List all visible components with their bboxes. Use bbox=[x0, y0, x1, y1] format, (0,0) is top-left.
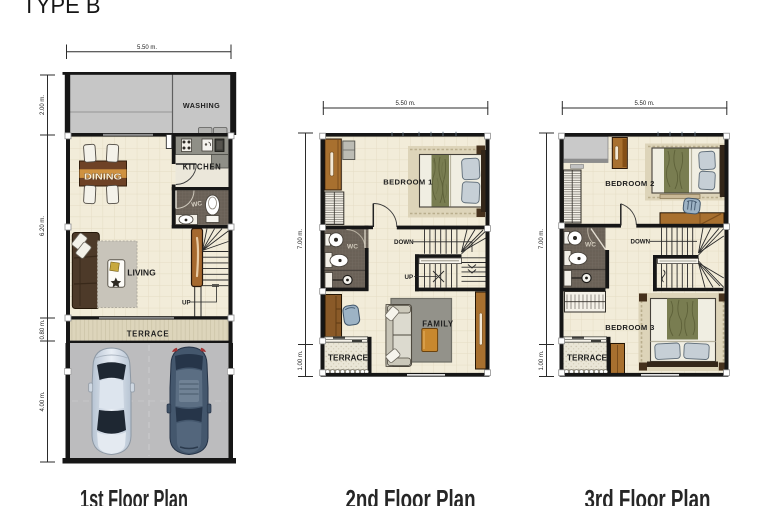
svg-text:WASHING: WASHING bbox=[183, 101, 220, 110]
svg-text:LIVING: LIVING bbox=[127, 268, 156, 278]
svg-text:BEDROOM 2: BEDROOM 2 bbox=[605, 179, 655, 188]
svg-text:UP: UP bbox=[405, 274, 414, 281]
svg-text:5.50 m.: 5.50 m. bbox=[634, 101, 654, 107]
svg-text:6.20 m.: 6.20 m. bbox=[40, 216, 46, 236]
svg-text:DOWN: DOWN bbox=[631, 239, 651, 246]
svg-text:BEDROOM 1: BEDROOM 1 bbox=[383, 178, 433, 187]
svg-text:1.00 m.: 1.00 m. bbox=[539, 350, 545, 370]
svg-text:2nd Floor Plan: 2nd Floor Plan bbox=[346, 486, 476, 506]
svg-text:7.00 m.: 7.00 m. bbox=[298, 229, 304, 249]
svg-text:FAMILY: FAMILY bbox=[422, 319, 454, 328]
svg-text:DOWN: DOWN bbox=[394, 239, 414, 246]
svg-text:TERRACE: TERRACE bbox=[567, 353, 607, 363]
svg-text:7.00 m.: 7.00 m. bbox=[539, 229, 545, 249]
svg-text:KITCHEN: KITCHEN bbox=[183, 163, 222, 172]
svg-text:UP: UP bbox=[182, 300, 191, 307]
svg-text:5.50 m.: 5.50 m. bbox=[395, 101, 415, 107]
svg-text:DINING: DINING bbox=[84, 172, 122, 181]
svg-text:0.80 m.: 0.80 m. bbox=[40, 319, 46, 339]
svg-text:1st Floor Plan: 1st Floor Plan bbox=[80, 486, 188, 506]
svg-text:TYPE B: TYPE B bbox=[23, 0, 101, 18]
svg-text:4.00 m.: 4.00 m. bbox=[40, 391, 46, 411]
svg-text:TERRACE: TERRACE bbox=[127, 329, 170, 338]
svg-text:WC: WC bbox=[347, 244, 358, 251]
svg-text:BEDROOM 3: BEDROOM 3 bbox=[605, 323, 655, 332]
svg-text:TERRACE: TERRACE bbox=[328, 353, 368, 363]
svg-text:3rd Floor Plan: 3rd Floor Plan bbox=[585, 486, 711, 506]
svg-text:5.50 m.: 5.50 m. bbox=[137, 45, 157, 51]
svg-text:WC: WC bbox=[585, 242, 596, 249]
svg-text:2.00 m.: 2.00 m. bbox=[40, 95, 46, 115]
svg-text:1.00 m.: 1.00 m. bbox=[298, 350, 304, 370]
